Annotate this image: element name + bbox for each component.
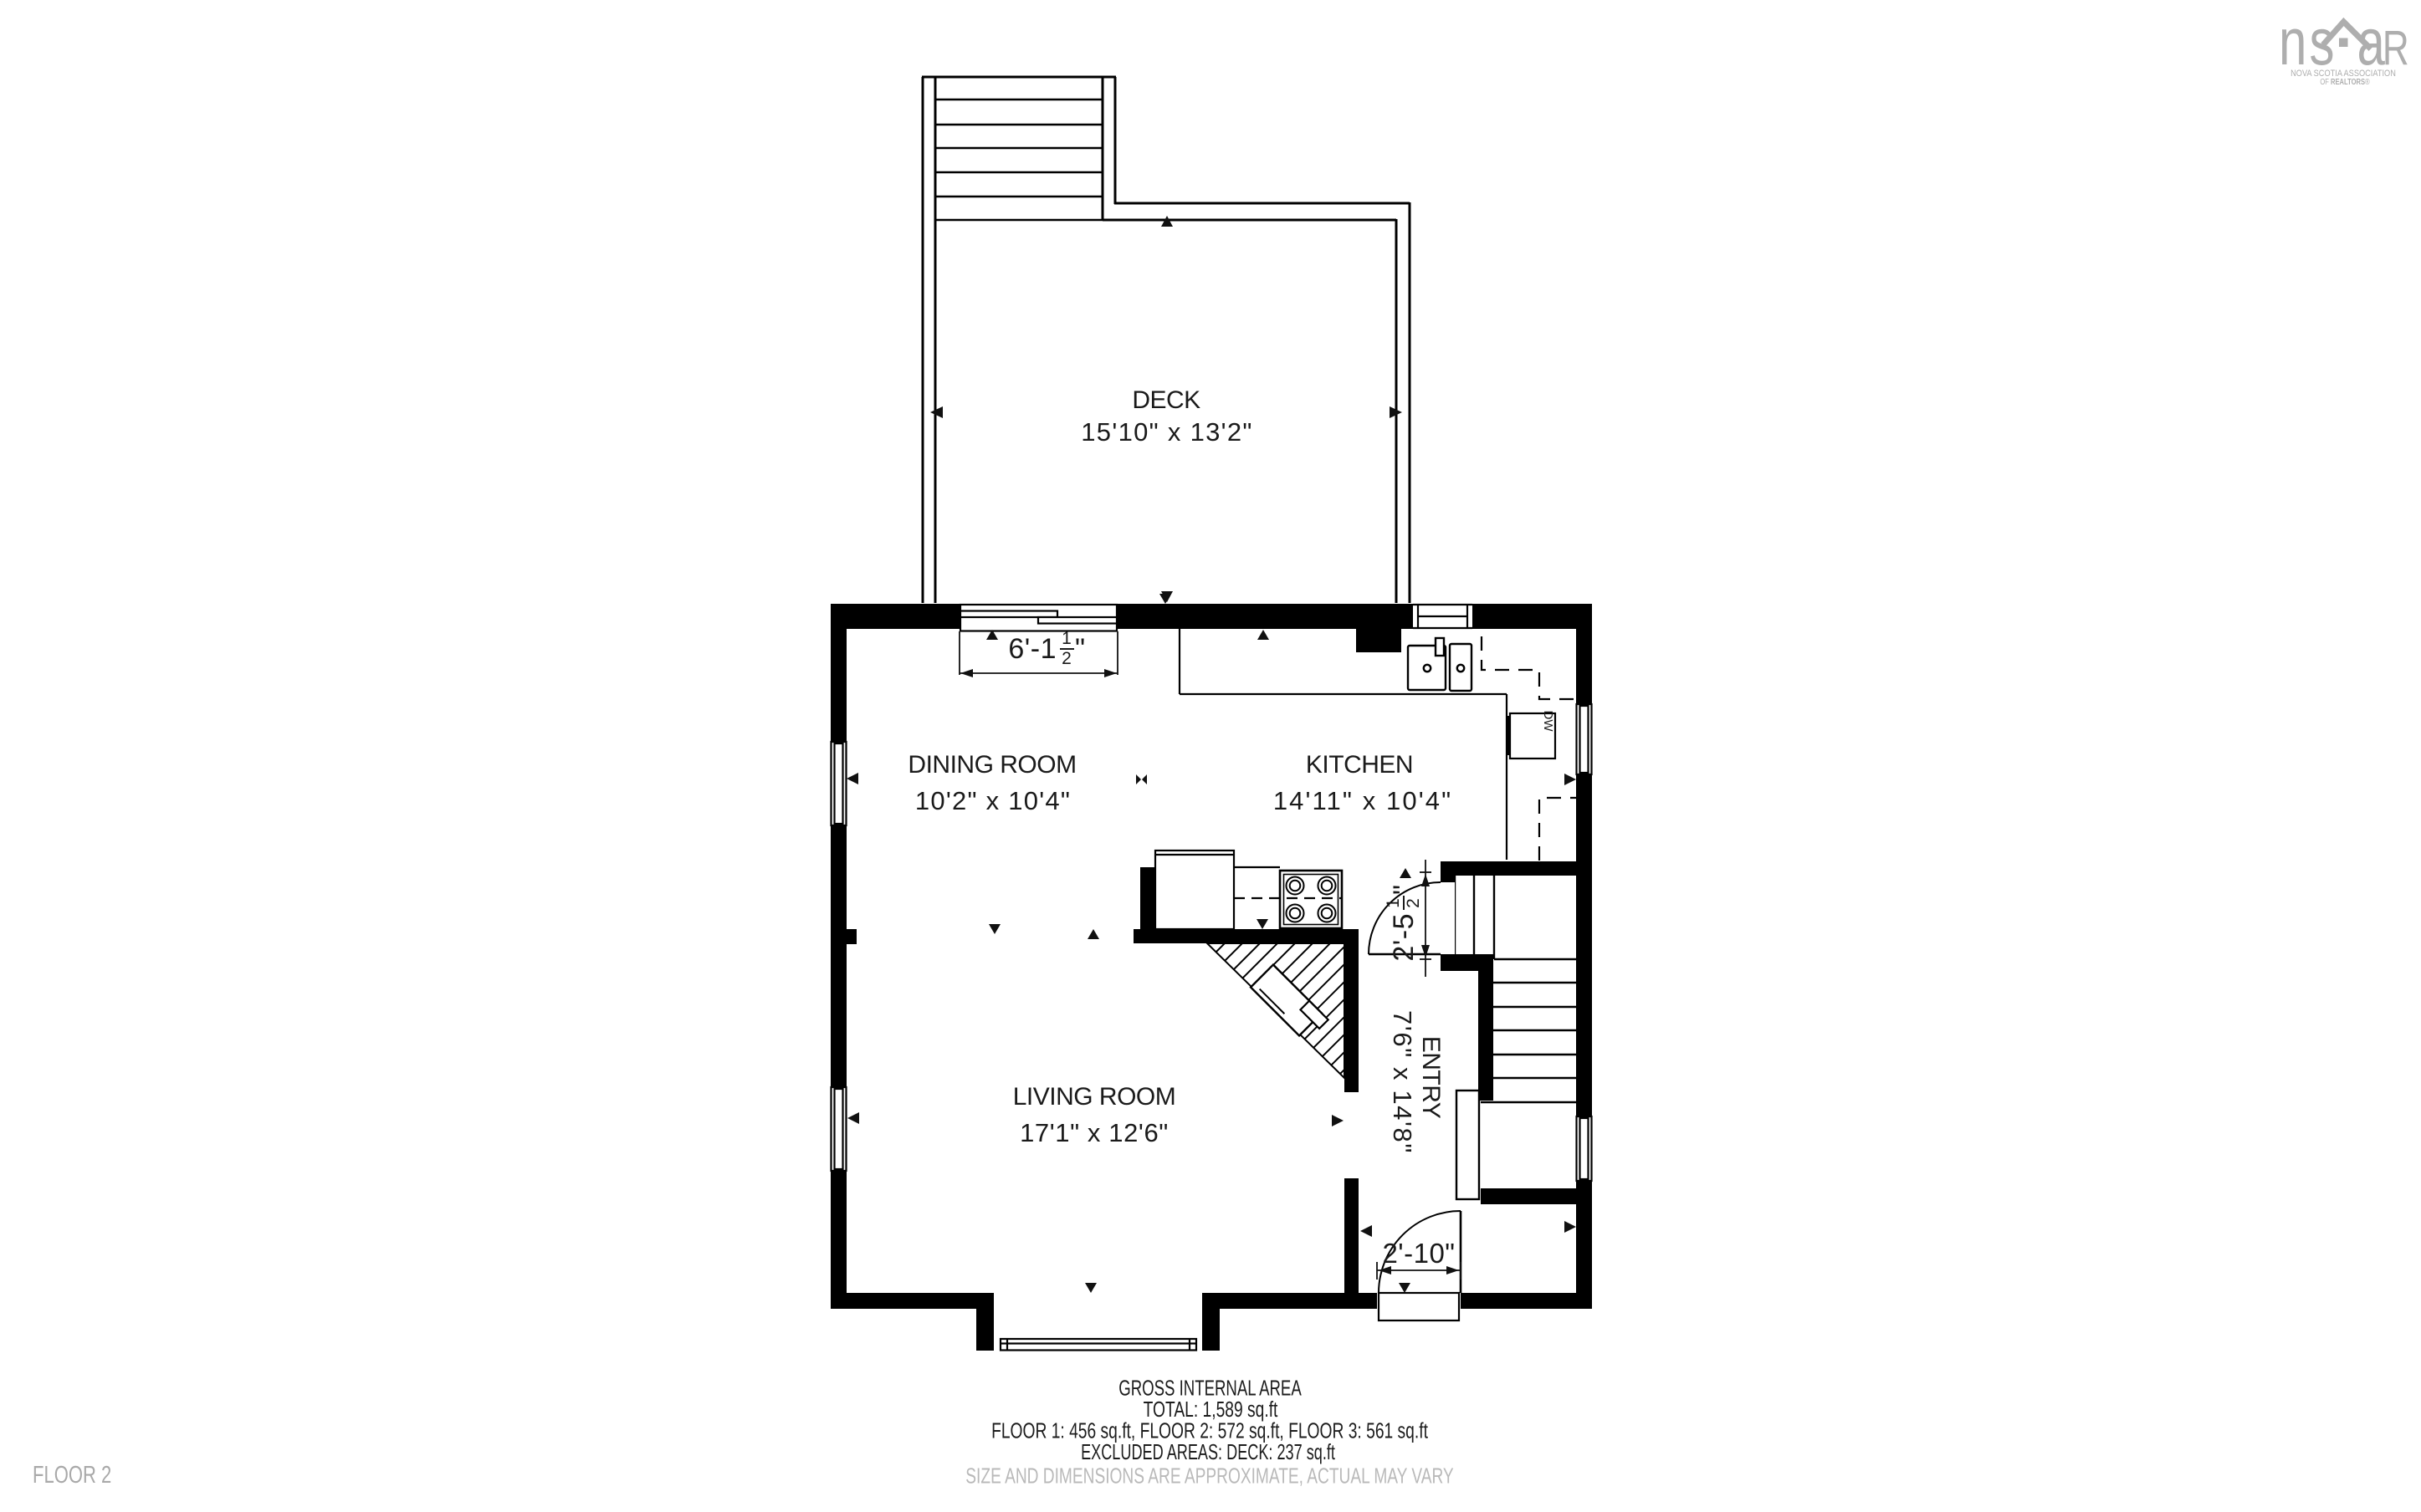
svg-text:LIVING ROOM: LIVING ROOM — [1013, 1083, 1176, 1111]
svg-text:2'-10": 2'-10" — [1382, 1238, 1455, 1269]
svg-text:DECK: DECK — [1132, 386, 1200, 414]
svg-text:DINING ROOM: DINING ROOM — [908, 751, 1076, 779]
svg-text:s: s — [2309, 4, 2334, 79]
svg-text:7'6" x 14'8": 7'6" x 14'8" — [1388, 1010, 1417, 1154]
svg-text:n: n — [2279, 4, 2306, 79]
svg-text:SIZE AND DIMENSIONS ARE APPROX: SIZE AND DIMENSIONS ARE APPROXIMATE, ACT… — [965, 1464, 1453, 1488]
svg-text:FLOOR 1: 456 sq.ft, FLOOR 2: 5: FLOOR 1: 456 sq.ft, FLOOR 2: 572 sq.ft, … — [991, 1419, 1428, 1443]
svg-text:OF REALTORS®: OF REALTORS® — [2320, 77, 2370, 86]
svg-text:14'11" x 10'4": 14'11" x 10'4" — [1273, 786, 1452, 815]
svg-text:EXCLUDED AREAS: DECK: 237 sq.f: EXCLUDED AREAS: DECK: 237 sq.ft — [1081, 1440, 1335, 1464]
svg-text:2: 2 — [1404, 898, 1423, 908]
svg-text:2: 2 — [1062, 649, 1072, 668]
svg-text:15'10" x 13'2": 15'10" x 13'2" — [1081, 417, 1252, 447]
svg-text:TOTAL: 1,589 sq.ft: TOTAL: 1,589 sq.ft — [1144, 1397, 1278, 1421]
svg-text:6'-1: 6'-1 — [1008, 633, 1057, 665]
svg-text:": " — [1075, 633, 1085, 665]
svg-text:": " — [1388, 885, 1420, 895]
svg-text:2'-5: 2'-5 — [1388, 913, 1420, 962]
svg-text:ENTRY: ENTRY — [1417, 1036, 1445, 1119]
svg-text:DW: DW — [1541, 711, 1555, 733]
svg-text:FLOOR 2: FLOOR 2 — [33, 1462, 111, 1489]
svg-text:KITCHEN: KITCHEN — [1306, 751, 1413, 779]
svg-text:R: R — [2383, 20, 2409, 74]
svg-text:17'1" x 12'6": 17'1" x 12'6" — [1020, 1118, 1169, 1147]
svg-text:10'2" x 10'4": 10'2" x 10'4" — [915, 786, 1071, 815]
svg-text:1: 1 — [1062, 629, 1072, 648]
svg-text:GROSS INTERNAL AREA: GROSS INTERNAL AREA — [1118, 1377, 1302, 1401]
svg-text:1: 1 — [1384, 898, 1403, 908]
